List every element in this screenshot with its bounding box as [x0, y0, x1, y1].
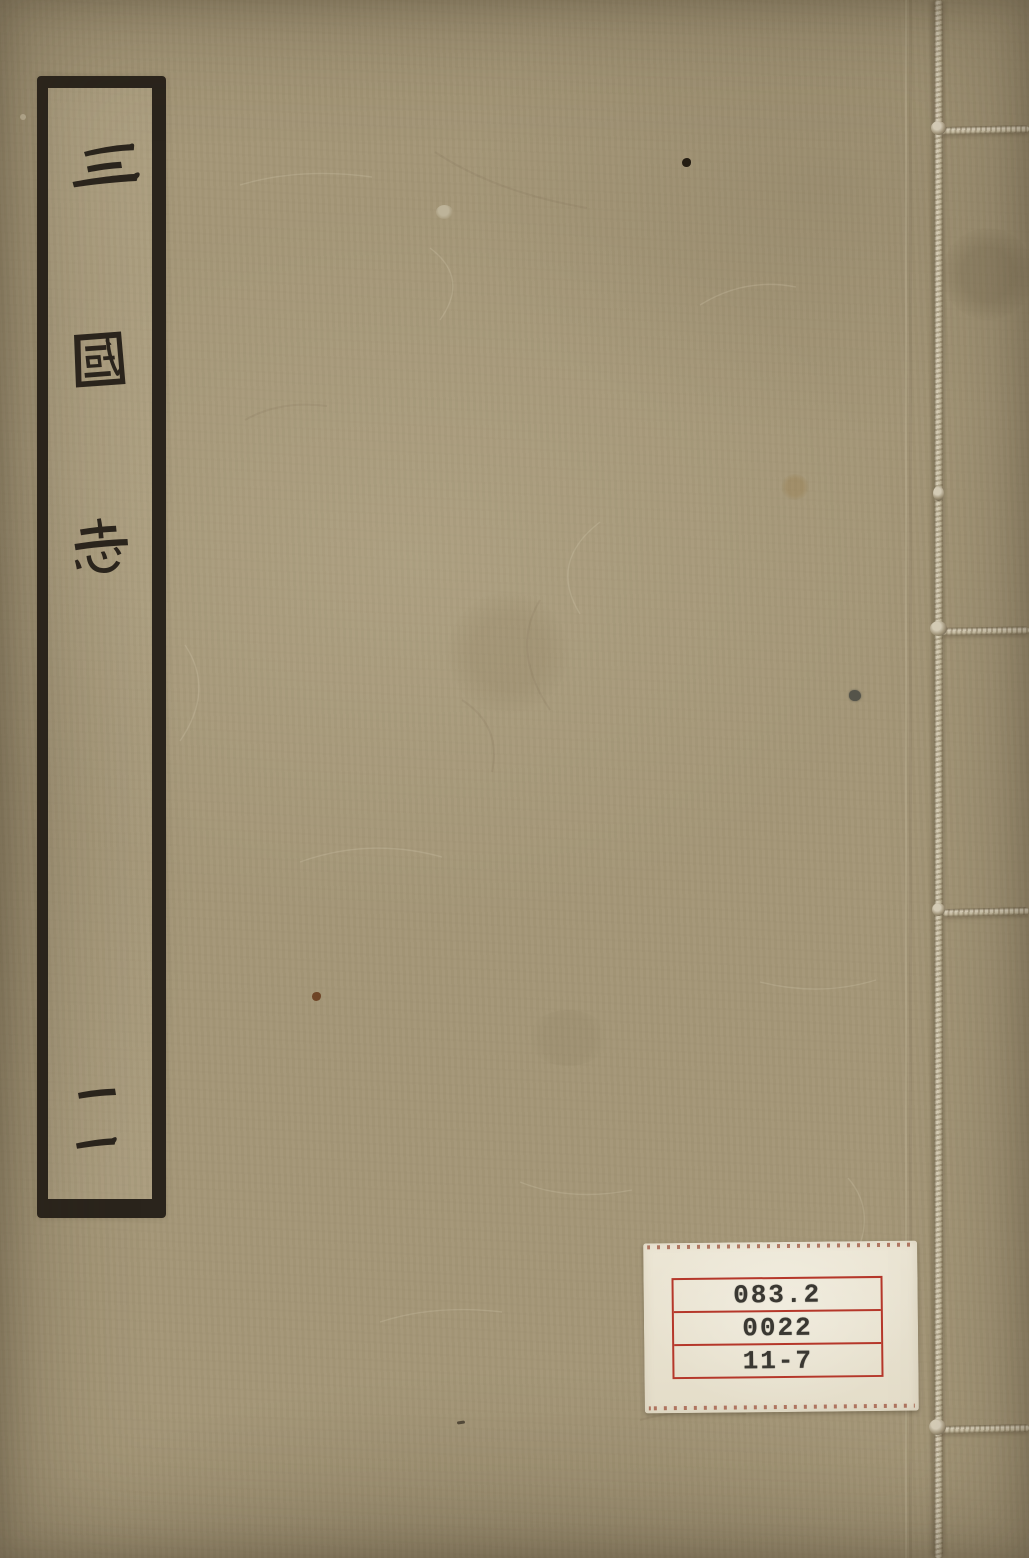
title-char-guo [71, 330, 129, 389]
volume-number-char [74, 1086, 121, 1150]
title-label-frame [37, 76, 166, 1218]
call-number-class: 083.2 [674, 1278, 881, 1313]
perforation-edge-bottom [649, 1404, 915, 1411]
title-char-zhi [72, 517, 131, 579]
book-cover-photo: 三國志 [0, 0, 1029, 1558]
perforation-edge-top [647, 1243, 913, 1250]
call-number-box: 083.2 0022 11-7 [671, 1276, 883, 1379]
library-label: 083.2 0022 11-7 [643, 1241, 919, 1414]
call-number-volume: 11-7 [674, 1344, 881, 1377]
call-number-book: 0022 [674, 1311, 881, 1346]
title-char-san [68, 140, 142, 188]
